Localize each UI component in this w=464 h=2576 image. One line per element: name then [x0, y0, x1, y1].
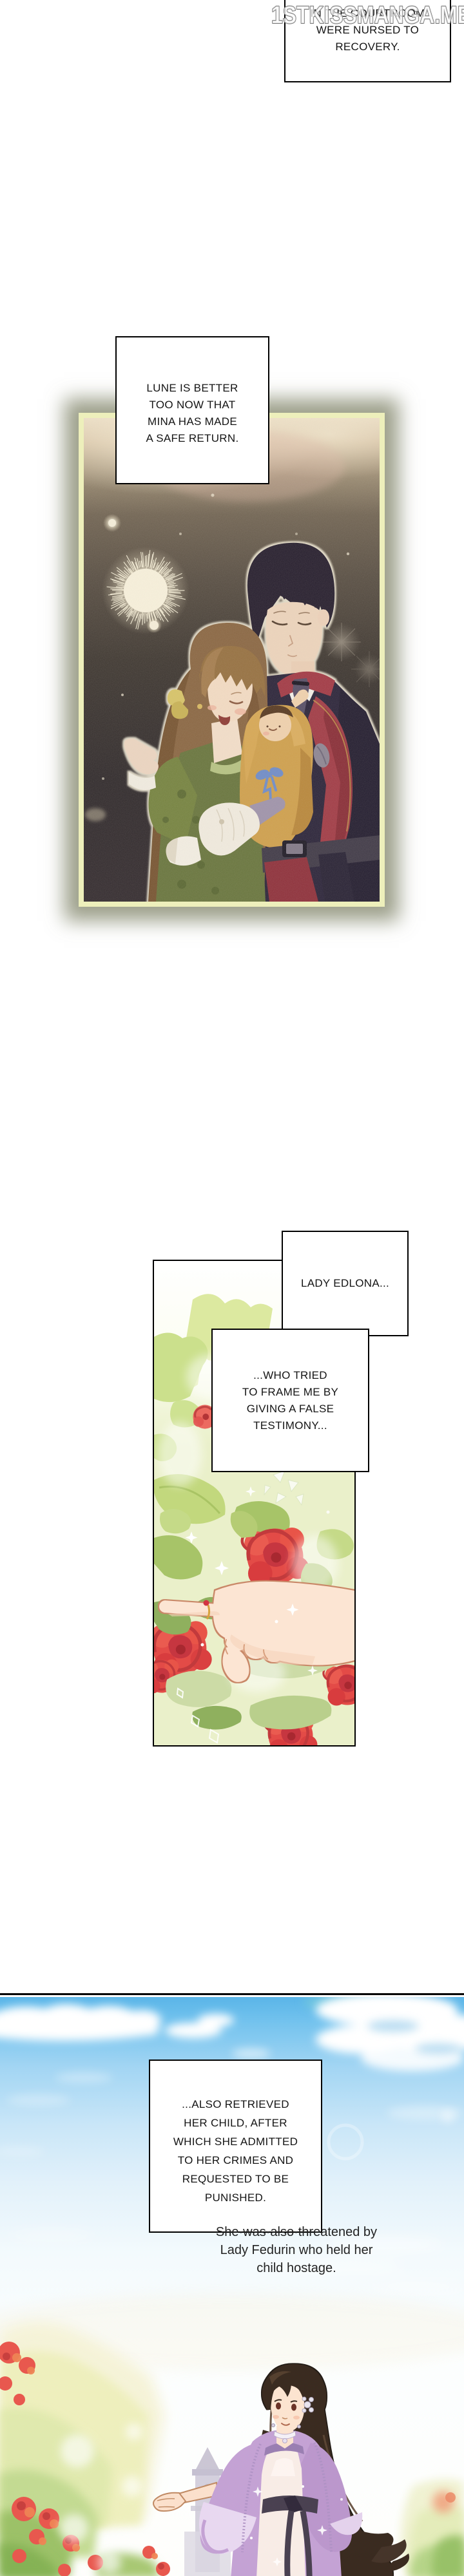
svg-text:1STKISSMANGA.ME: 1STKISSMANGA.ME — [271, 2, 464, 29]
